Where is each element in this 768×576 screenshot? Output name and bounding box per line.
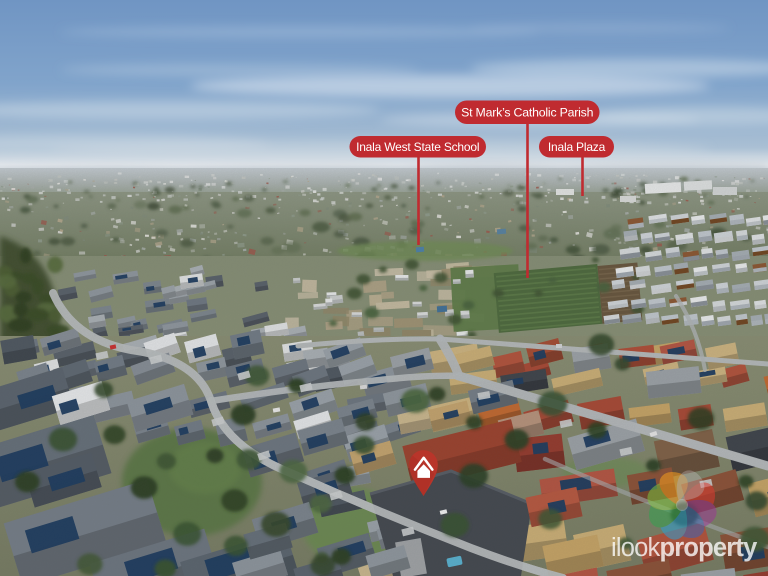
svg-text:Inala West State School: Inala West State School <box>356 140 479 154</box>
svg-text:ilookproperty: ilookproperty <box>611 534 758 562</box>
svg-text:Inala Plaza: Inala Plaza <box>548 140 606 154</box>
svg-text:St Mark’s Catholic Parish: St Mark’s Catholic Parish <box>461 106 593 120</box>
